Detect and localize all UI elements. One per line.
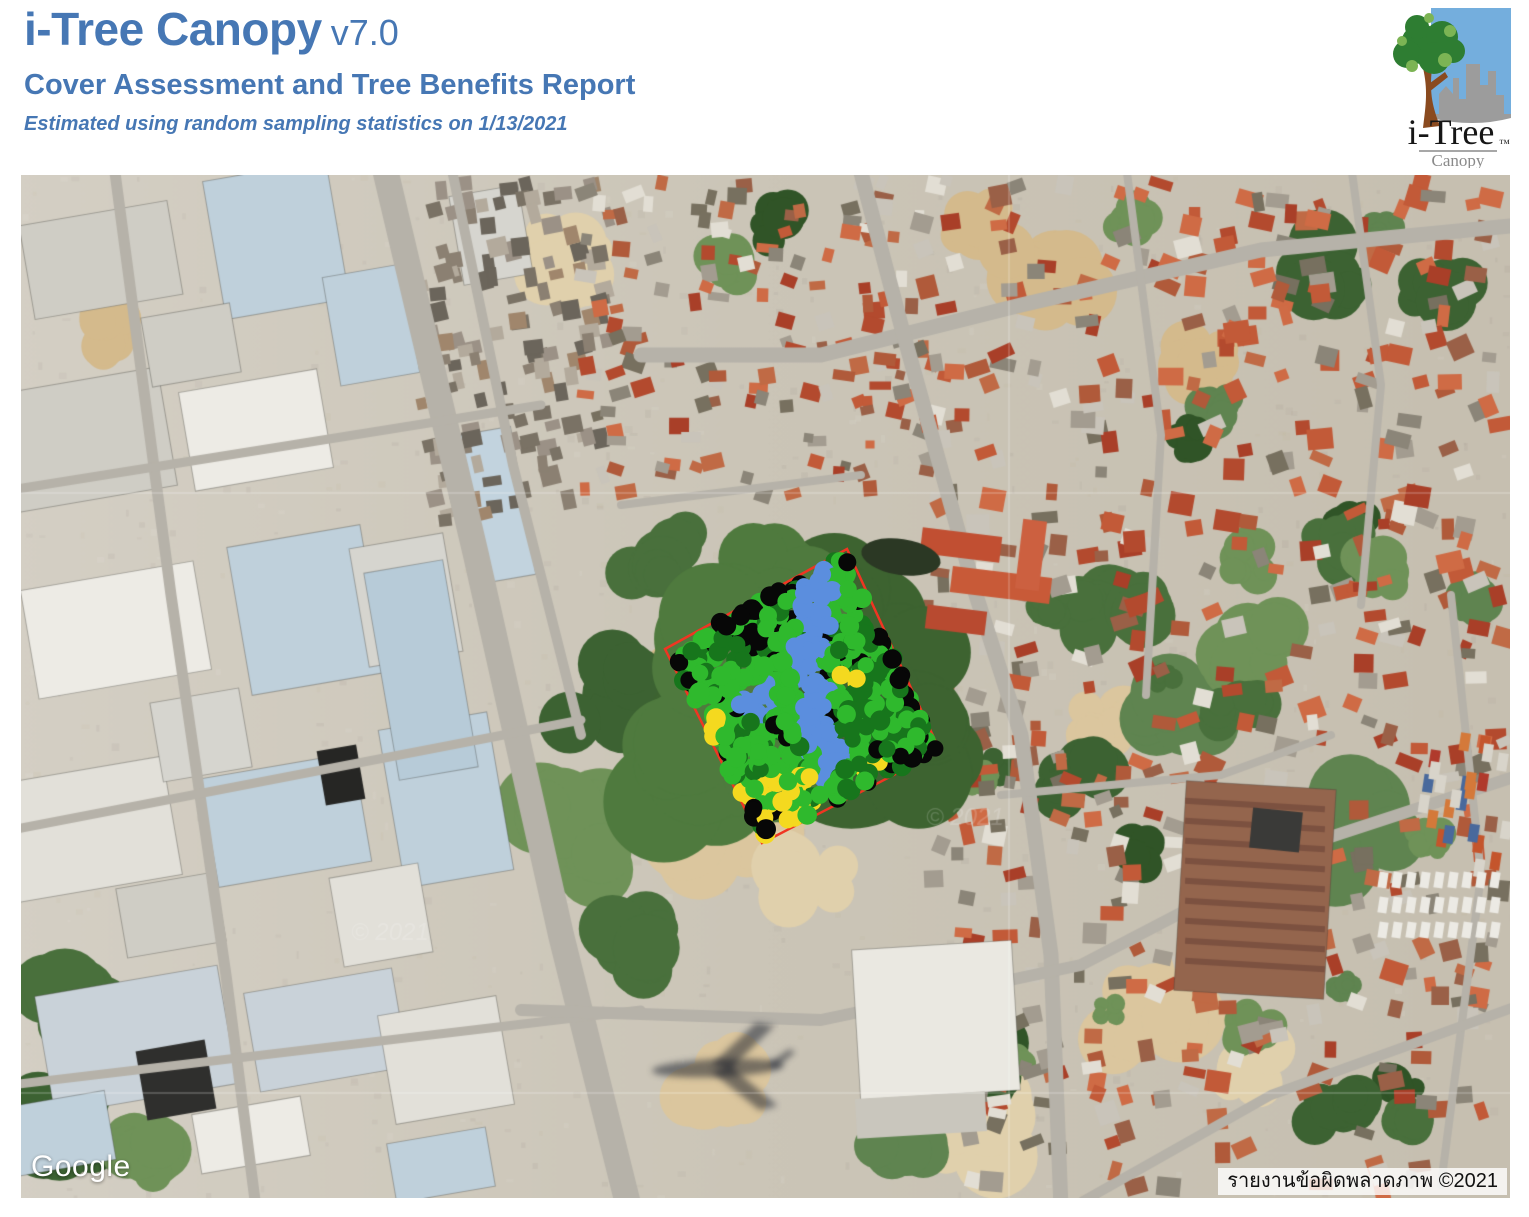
report-page: i-Tree Canopyv7.0 Cover Assessment and T…	[0, 0, 1529, 1217]
satellite-basemap	[21, 175, 1510, 1198]
survey-points	[670, 552, 944, 844]
page-title: i-Tree Canopyv7.0	[24, 4, 635, 55]
logo-tm: ™	[1499, 138, 1510, 150]
logo-product-text: Canopy	[1432, 151, 1485, 168]
google-watermark: Google	[31, 1150, 131, 1184]
map-view: Google รายงานข้อผิดพลาดภาพ ©2021	[21, 175, 1510, 1198]
logo-brand-text: i-Tree	[1408, 112, 1495, 152]
map-attribution: รายงานข้อผิดพลาดภาพ ©2021	[1218, 1168, 1507, 1195]
version-label: v7.0	[331, 12, 399, 53]
report-subtitle: Cover Assessment and Tree Benefits Repor…	[24, 69, 635, 102]
itree-logo: i-Tree ™ Canopy	[1393, 6, 1513, 168]
app-name: i-Tree Canopy	[24, 3, 322, 55]
survey-overlay	[21, 175, 1510, 1198]
report-note: Estimated using random sampling statisti…	[24, 113, 635, 136]
report-header: i-Tree Canopyv7.0 Cover Assessment and T…	[24, 4, 635, 136]
survey-boundary	[665, 549, 940, 843]
